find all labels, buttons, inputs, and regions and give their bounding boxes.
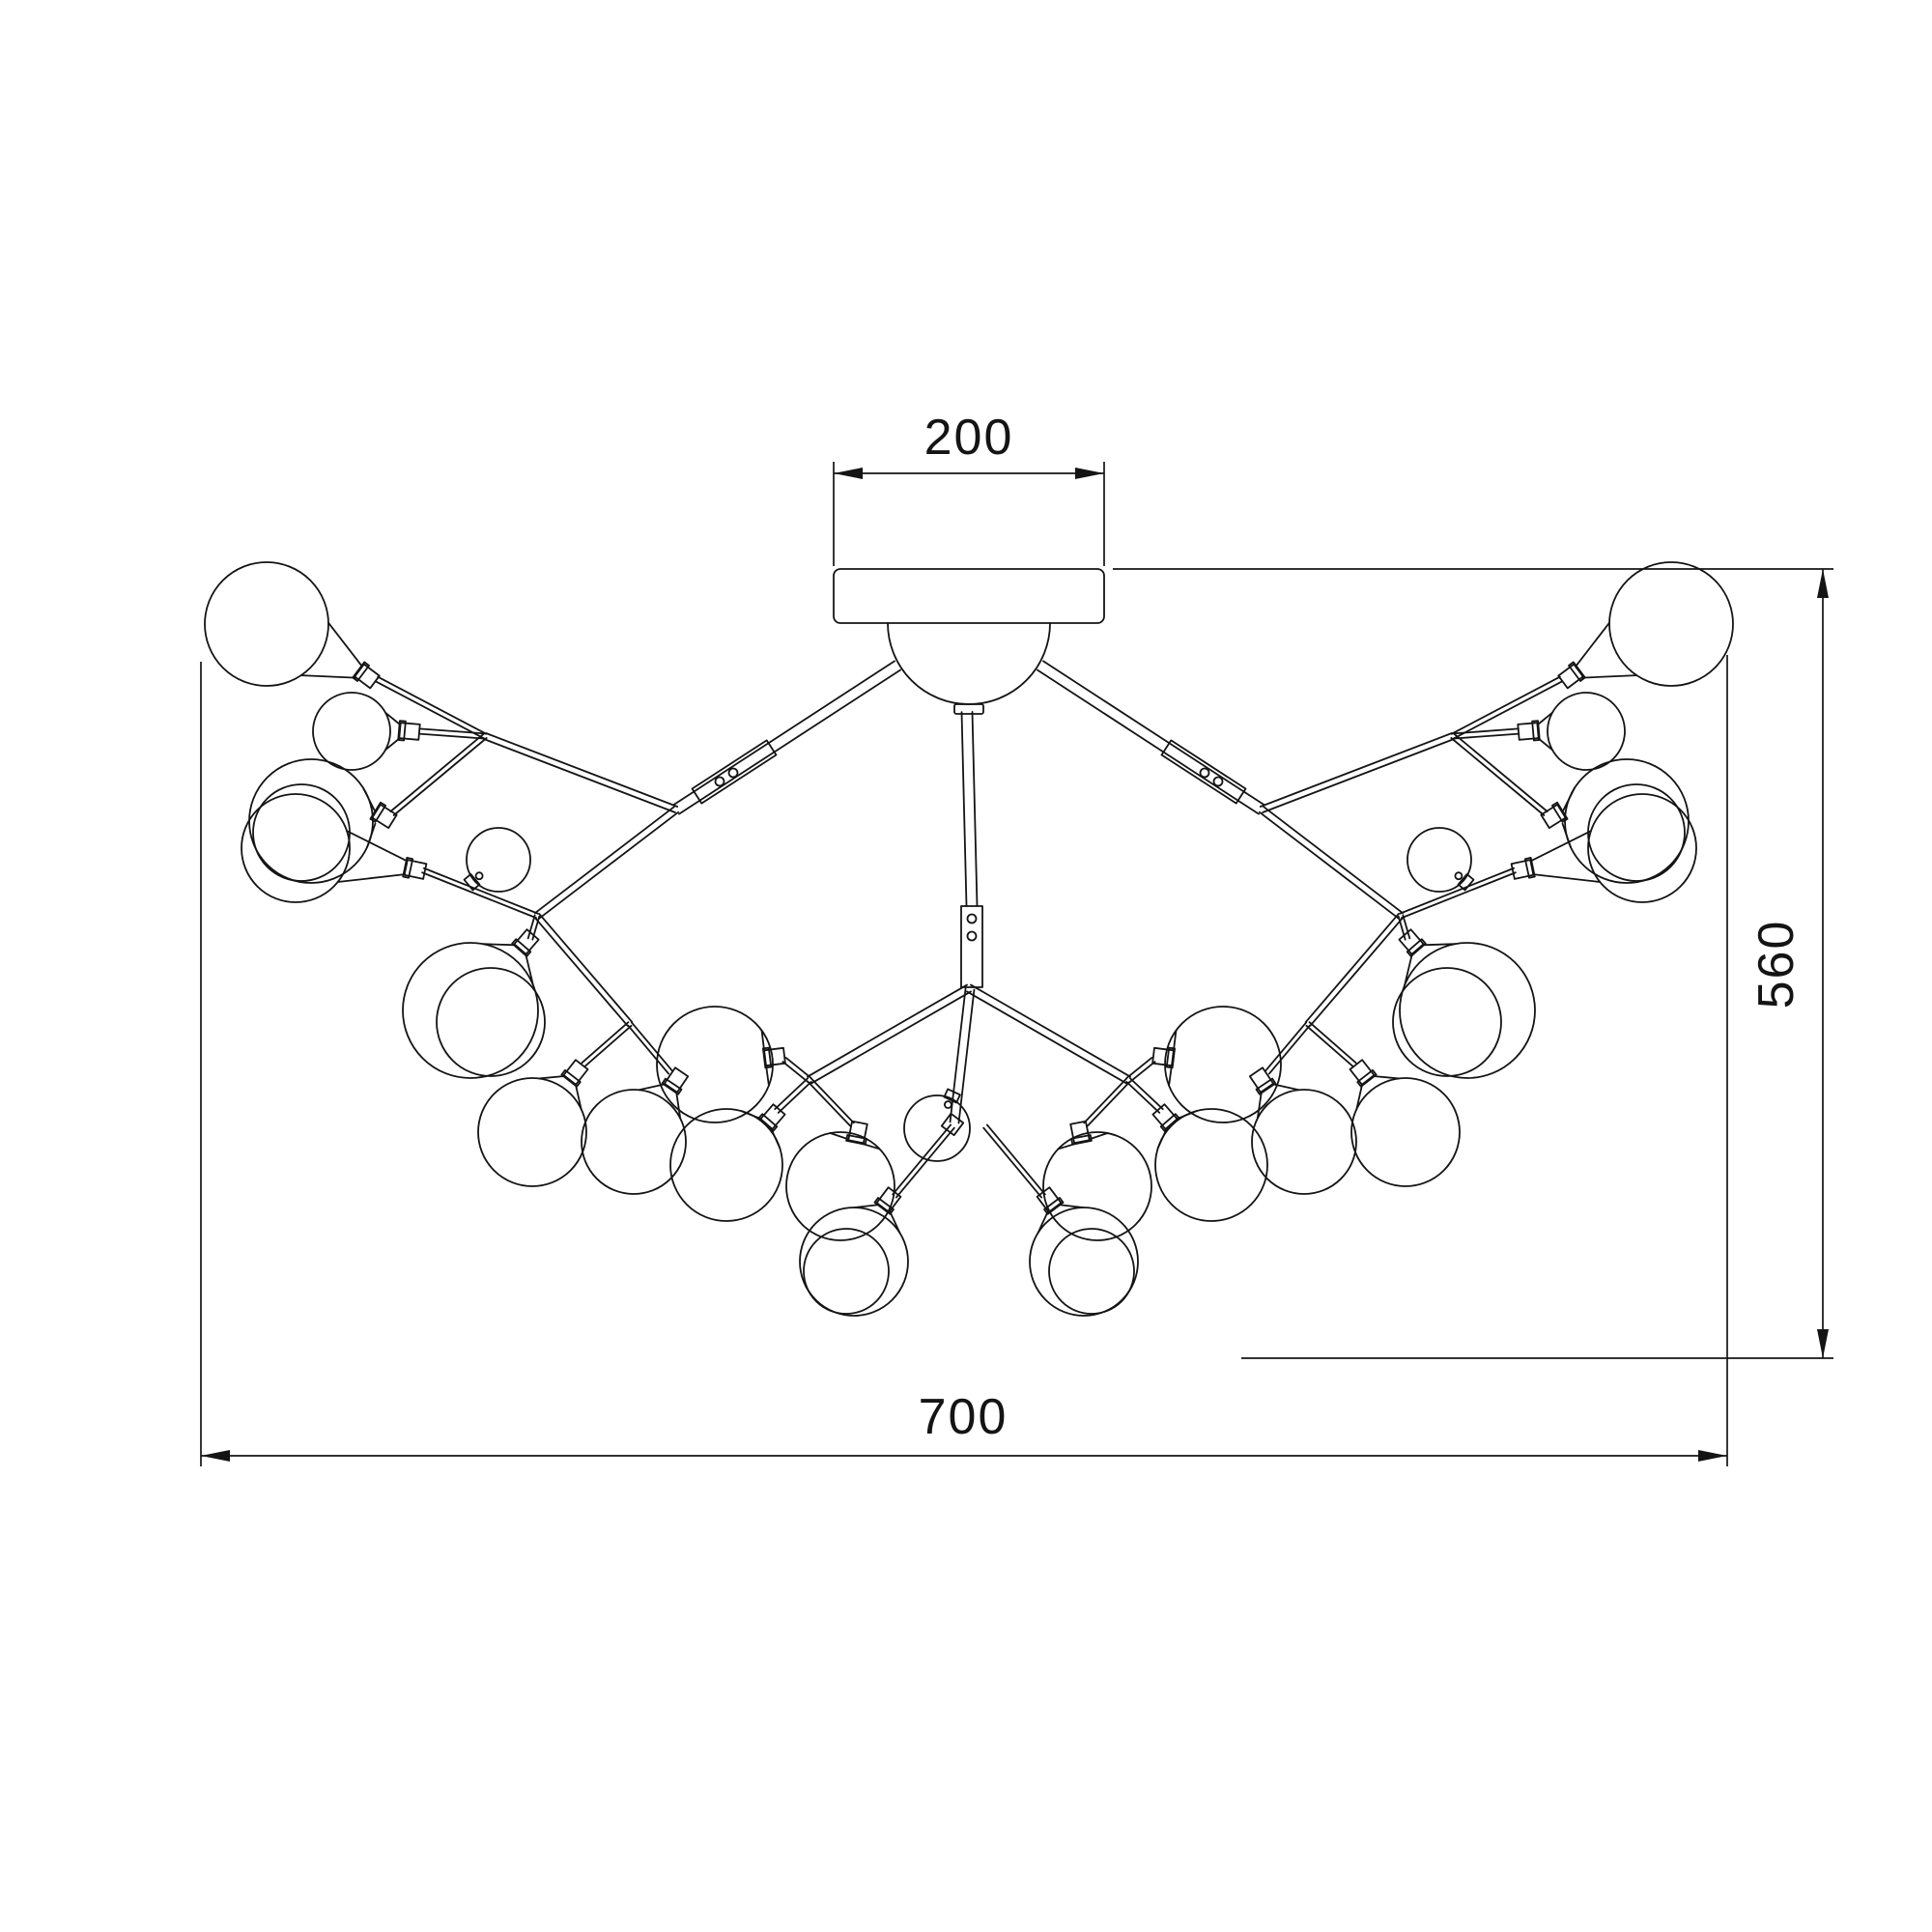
branch-tube [1306,1022,1355,1066]
socket-rim [1357,1070,1377,1087]
bulb-neck [855,1205,878,1207]
bulb-tip [945,1101,952,1108]
line [1306,1026,1352,1066]
branch-tube [1084,1078,1129,1125]
line [1453,728,1519,733]
line [779,1082,811,1113]
line [535,918,628,1026]
bulb-inner-wall [253,784,350,881]
branch-tube [1451,734,1547,815]
line [419,728,485,733]
glass-bulb [1538,693,1625,770]
socket-rim [663,1079,682,1094]
bulb-neck [1533,874,1600,882]
line [539,812,678,919]
central-dome-hub [888,623,1050,704]
line [811,991,971,1083]
bulb-body [1548,693,1625,770]
bulb-socket [1152,1104,1179,1131]
glass-bulb [800,1205,908,1316]
glass-bulb [1043,1132,1151,1240]
glass-bulb-end-view [1407,828,1474,892]
screw-hole [1214,778,1223,786]
bulb-inner-wall [1393,968,1501,1076]
socket-body [405,860,427,879]
line [1451,738,1544,815]
line [1126,1082,1159,1113]
bulb-nub [944,1089,960,1102]
bulb-body [1030,1207,1138,1316]
line [1037,670,1259,814]
line [535,807,674,913]
socket-rim [561,1070,581,1087]
screw-hole [729,769,738,778]
drawing-page: 200 560 700 [0,0,1932,1932]
socket-rim [1407,939,1426,956]
bulb-socket [353,662,380,688]
bulb-tip [1455,872,1462,879]
dimension-canopy-width: 200 [834,410,1104,566]
branch-tube [422,868,538,918]
bulb-socket [1350,1060,1377,1087]
line [987,1124,1045,1194]
socket-body [1512,860,1534,879]
bulb-neck [1531,831,1591,861]
line [1310,1022,1356,1063]
line [967,991,1126,1083]
bulb-neck [539,1076,564,1078]
bulb-body [1407,828,1471,892]
branch-tubes [376,661,1562,1197]
arrowhead-right-icon [1698,1450,1727,1462]
line [958,990,974,1123]
socket-body [848,1122,867,1144]
arrowhead-right-icon [1075,468,1104,479]
glass-bulb-end-view [465,828,531,892]
bulb-neck [1563,788,1575,810]
bulb-body [670,1109,782,1221]
line [378,677,486,734]
dome-collar [954,704,983,714]
line [983,1128,1041,1198]
line [1260,812,1399,919]
branch-tube [535,807,678,919]
glass-bulb [313,693,400,770]
bulb-inner-wall [437,968,545,1076]
bulb-body [241,794,350,902]
socket-rim [512,939,530,956]
bulb-body [478,1078,586,1186]
bulb-socket [1518,721,1540,740]
line [1265,1022,1306,1070]
glass-bulb [786,1132,895,1240]
bulb-neck [1577,623,1609,667]
central-sleeve [961,906,982,987]
bulb-body [1155,1109,1267,1221]
branch-tube [582,1022,631,1066]
socket-rim [1257,1079,1276,1094]
line [585,1026,632,1066]
line [971,985,1130,1077]
screw-hole [1201,769,1209,778]
bulb-neck [1423,944,1455,945]
glass-bulb [670,1109,782,1221]
screw-hole [968,915,977,923]
line [394,738,487,815]
bulb-neck [1060,1205,1083,1207]
branch-tube [1261,733,1454,812]
line [1261,733,1452,807]
bulb-body [467,828,530,892]
bulb-neck [830,1133,848,1139]
branch-tube [983,1124,1045,1197]
glass-bulb-end-view [904,1089,970,1161]
chandelier-fixture [205,562,1733,1316]
bulb-body [800,1207,908,1316]
bulb-neck [338,874,405,882]
bulb-body [1565,759,1689,883]
bulb-body [249,759,373,883]
bulb-inner-wall [1049,1229,1134,1314]
bulb-body [205,562,328,686]
glass-bulb [478,1076,586,1186]
screw-hole [968,932,977,941]
branch-tube [1126,1078,1163,1113]
socket-body [1070,1122,1090,1144]
branch-tube [1306,914,1404,1026]
bulb-neck [1090,1133,1108,1139]
glass-bulb [1393,943,1535,1078]
bulb-body [1252,1090,1356,1194]
branch-tube [1037,661,1264,813]
socket-rim [1161,1114,1179,1131]
glass-bulb [657,1007,773,1122]
arrowhead-left-icon [834,468,863,479]
branch-tube [962,712,978,906]
branch-tube [390,734,486,815]
line [808,1082,850,1126]
arm-sleeve [1162,740,1246,803]
screw-hole [716,778,724,786]
glass-bulb [1577,562,1733,686]
bulb-body [313,693,390,770]
bulb-body [1609,562,1733,686]
socket-body [1152,1048,1174,1065]
bulb-neck [363,788,375,810]
bulb-tip [476,872,483,879]
line [1130,1078,1163,1109]
glass-bulb [1563,759,1689,883]
line [1088,1082,1130,1126]
line [1084,1078,1126,1122]
bulb-neck [1374,1076,1399,1078]
dimension-value-overall-width: 700 [919,1389,1009,1445]
line [893,1124,951,1194]
line [632,1022,672,1070]
bulb-body [1351,1078,1460,1186]
bulb-neck [483,944,515,945]
bulb-neck [526,953,533,984]
line [1455,734,1548,811]
bulb-socket [398,721,420,740]
branch-tube [535,914,633,1026]
line [1452,677,1560,734]
branch-tube [1265,1022,1310,1073]
bulb-body [403,943,538,1078]
line [673,661,895,805]
line [628,1026,668,1074]
line [962,712,967,906]
socket-body [399,723,419,740]
bulb-inner-wall [1588,784,1685,881]
glass-bulb [205,562,361,686]
branch-tube [484,733,677,812]
branch-tube [893,1124,954,1197]
bulb-neck [1405,953,1412,984]
branch-tube [808,985,971,1084]
glass-bulb [1165,1007,1281,1122]
branch-tube [1453,728,1519,738]
glass-bulb [249,759,375,883]
branch-tube [1260,807,1403,919]
branch-tube [419,728,485,738]
branch-tube [628,1022,672,1073]
bulb-neck [347,831,407,861]
line [1400,868,1514,914]
bulb-socket [561,1060,587,1087]
line [1269,1026,1310,1074]
arm-sleeve [693,740,777,803]
bulb-neck [771,1128,780,1148]
branch-tube [808,1078,853,1125]
line [486,733,677,807]
line [390,734,483,811]
line [811,1078,854,1122]
branch-tube [775,1078,811,1113]
glass-bulb [1351,1076,1460,1186]
arrowhead-up-icon [1817,569,1829,598]
bulb-socket [758,1104,784,1131]
dimension-value-canopy-width: 200 [924,410,1014,466]
dimension-value-overall-height: 560 [1748,920,1804,1009]
socket-body [764,1048,785,1065]
bulb-neck [301,675,355,677]
bulb-body [582,1090,686,1194]
chandelier-dimension-drawing: 200 560 700 [0,0,1932,1932]
bulb-neck [328,623,361,667]
bulb-body [1165,1007,1281,1122]
ceiling-canopy [834,569,1104,623]
line [424,868,538,914]
bulb-body [657,1007,773,1122]
bulb-nub [1459,874,1474,891]
socket-body [1518,723,1538,740]
bulb-neck [1582,675,1636,677]
line [1264,807,1403,913]
line [775,1078,808,1109]
branch-tube [1400,868,1516,918]
bulb-socket [1558,662,1585,688]
line [484,739,675,812]
arrowhead-left-icon [201,1450,230,1462]
glass-bulb [1155,1109,1267,1221]
dimension-overall-height: 560 [1113,569,1833,1358]
bulb-inner-wall [804,1229,889,1314]
glass-bulb [403,943,545,1078]
branch-tube [673,661,900,813]
bulb-nub [465,874,480,891]
bulb-socket [1037,1187,1064,1214]
glass-bulb [1030,1205,1138,1316]
line [582,1022,628,1063]
line [679,670,900,814]
line [1263,739,1454,812]
socket-rim [758,1114,777,1131]
line [808,985,967,1077]
line [972,712,977,906]
branch-tube [967,985,1130,1084]
line [1310,918,1403,1026]
bulb-body [1400,943,1535,1078]
line [1043,661,1264,805]
bulb-body [1588,794,1696,902]
bulb-socket [874,1187,900,1214]
branch-tube [951,988,975,1122]
arrowhead-down-icon [1817,1329,1829,1358]
line [1306,914,1399,1022]
bulb-neck [1158,1128,1167,1148]
line [539,914,632,1022]
arm-sleeves [693,740,1246,1135]
